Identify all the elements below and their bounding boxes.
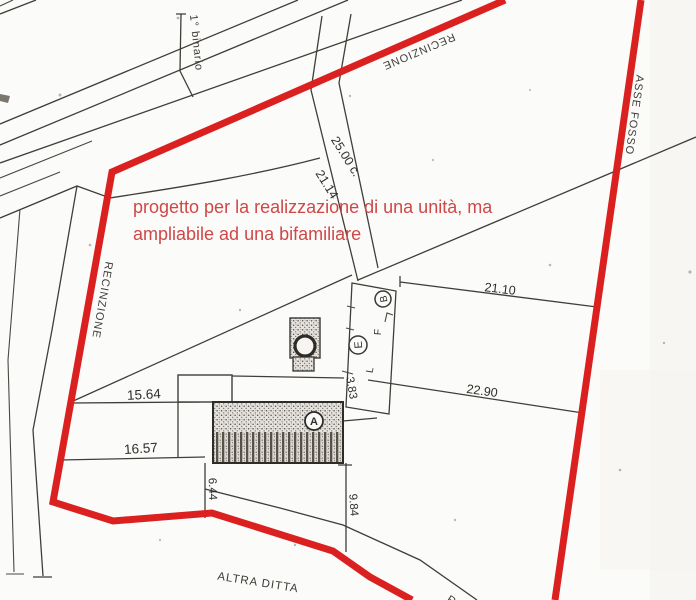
building (213, 402, 343, 463)
measure-path-right: 25.00 c. (328, 134, 363, 179)
measure-field-lower: 16.57 (124, 440, 159, 457)
building-lower-texture (213, 432, 343, 463)
railway-line (0, 0, 462, 163)
railway-lines (0, 0, 462, 196)
corner-mark (0, 0, 13, 6)
site-plan-drawing: progetto per la realizzazione di una uni… (0, 0, 696, 600)
strip-letter-e: E (353, 341, 366, 349)
site-plan-canvas: progetto per la realizzazione di una uni… (0, 0, 696, 600)
measure-house-right: 9.84 (346, 493, 360, 517)
measure-house-left: 6.44 (206, 478, 219, 501)
measure-field-upper: 15.64 (127, 386, 162, 403)
strip-mark-l: L (365, 366, 377, 374)
measure-strip-width: 3.83 (343, 376, 359, 400)
measure-parcel-upper: 21.10 (484, 280, 517, 298)
strip-mark-f: F (373, 329, 384, 336)
measure-parcel-lower: 22.90 (466, 382, 499, 400)
property-boundary-red-left (53, 0, 505, 600)
railway-line (0, 0, 298, 124)
building-letter: A (310, 416, 318, 428)
annotation-line-1: progetto per la realizzazione di una uni… (133, 197, 493, 217)
railway-line (0, 0, 36, 14)
strip-mark-hook (385, 313, 393, 322)
fence-label-bottom: RECINZIONE (444, 593, 516, 600)
building-to-strip-line (343, 418, 377, 421)
well-structure (290, 318, 320, 371)
scan-shading-2 (600, 370, 696, 570)
parcel-line-16-57 (60, 457, 205, 460)
railway-line (0, 172, 60, 196)
annotation-line-2: ampliabile ad una bifamiliare (133, 224, 361, 244)
railway-line (0, 0, 348, 145)
building-upper-texture (213, 402, 343, 433)
annex-to-strip-line (232, 376, 344, 378)
parcel-line-left-1 (33, 186, 77, 577)
well-circle (295, 336, 315, 356)
annex-outline (178, 375, 232, 402)
track-label: 1° binario (187, 14, 205, 72)
well-base (293, 357, 314, 371)
parcel-line-left-2 (6, 209, 24, 574)
other-owner-label: ALTRA DITTA (216, 571, 299, 596)
scan-edge-mark (0, 94, 10, 103)
